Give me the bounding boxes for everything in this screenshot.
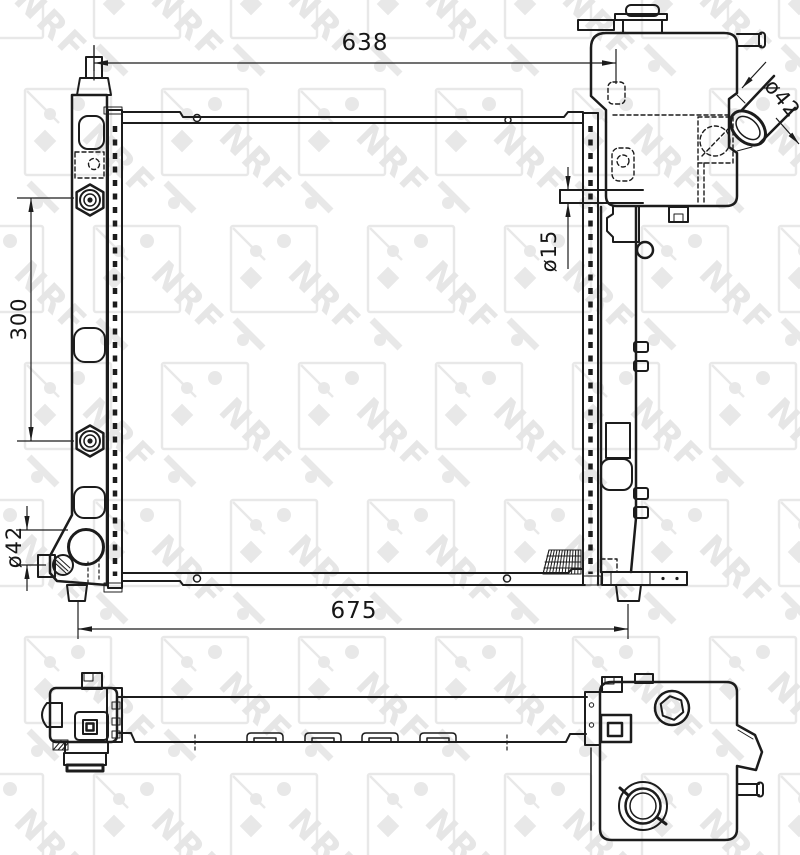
right-tank-opening	[606, 423, 630, 458]
foot-pad	[67, 765, 103, 771]
overflow-elbow	[637, 242, 653, 258]
side-pipe-top-view	[737, 783, 763, 797]
left-tank-slot-middle	[74, 328, 105, 362]
left-tank	[38, 95, 107, 601]
right-tank-boss	[601, 459, 632, 490]
overflow-pipe	[560, 190, 643, 203]
dimension-bottom-width: 675	[78, 598, 628, 639]
left-tank-slot-bottom	[74, 487, 105, 518]
drain-diameter-label: ø42	[2, 526, 26, 569]
pipe-diameter-label: ø15	[537, 230, 561, 273]
bottom-width-label: 675	[331, 598, 378, 624]
left-height-label: 300	[7, 297, 31, 340]
watermark-layer	[0, 0, 800, 855]
top-width-label: 638	[342, 30, 389, 56]
technical-drawing-page: NRF	[0, 0, 800, 855]
drain-opening-circle	[69, 530, 104, 565]
lower-hex-fitting	[77, 426, 104, 457]
upper-hex-fitting	[77, 185, 104, 216]
radiator-technical-drawing: NRF	[0, 0, 800, 855]
core-fins-hatch	[543, 550, 581, 574]
